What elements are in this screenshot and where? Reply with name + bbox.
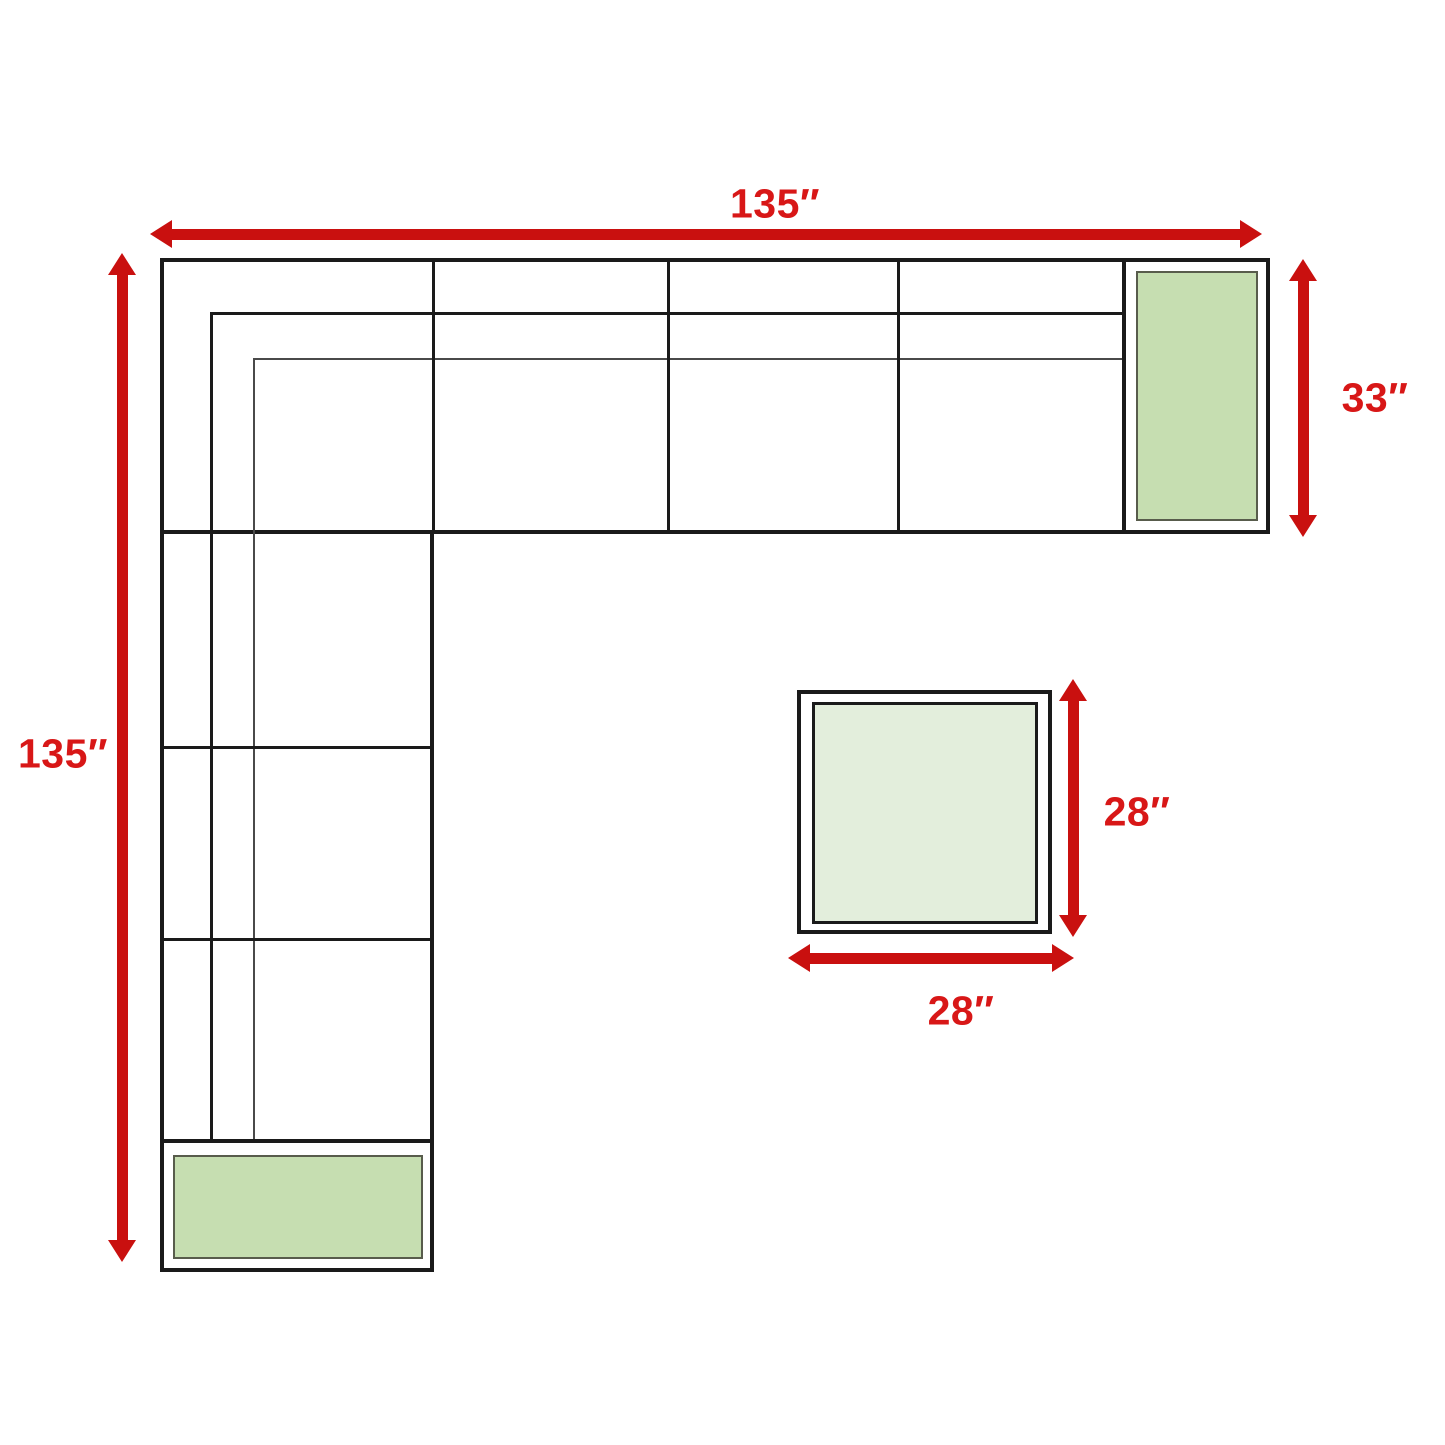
ottoman-depth-label: 28″	[1104, 792, 1171, 833]
arrow-shaft	[1298, 278, 1309, 518]
arrowhead-down-icon	[1289, 515, 1317, 537]
ottoman-width-label: 28″	[928, 991, 995, 1032]
top-arm-seam-3	[897, 258, 900, 534]
diagram-canvas: 135″ 135″ 33″ 28″ 28″	[0, 0, 1445, 1445]
arrow-shaft	[117, 272, 128, 1243]
arrowhead-down-icon	[1059, 915, 1087, 937]
arrowhead-down-icon	[108, 1240, 136, 1262]
top-arm-seam-1	[432, 258, 435, 534]
sofa-width-label: 135″	[730, 184, 820, 225]
arrow-shaft	[1068, 698, 1079, 918]
left-arm-seam-1	[160, 746, 434, 749]
left-arm-seam-2	[160, 938, 434, 941]
right-end-depth-label: 33″	[1342, 378, 1409, 419]
sofa-depth-arrow	[108, 253, 136, 1262]
right-end-cushion	[1136, 271, 1258, 521]
arrow-shaft	[169, 229, 1243, 240]
right-end-divider	[1122, 258, 1126, 534]
right-end-depth-arrow	[1289, 259, 1317, 537]
arrowhead-right-icon	[1052, 944, 1074, 972]
bottom-end-divider	[160, 1139, 434, 1143]
arrow-shaft	[807, 953, 1055, 964]
ottoman-cushion	[812, 702, 1038, 924]
sofa-width-arrow	[150, 220, 1262, 248]
arrowhead-right-icon	[1240, 220, 1262, 248]
ottoman-depth-arrow	[1059, 679, 1087, 937]
top-arm-seam-2	[667, 258, 670, 534]
ottoman-width-arrow	[788, 944, 1074, 972]
sofa-depth-label: 135″	[18, 734, 108, 775]
bottom-end-cushion	[173, 1155, 423, 1259]
